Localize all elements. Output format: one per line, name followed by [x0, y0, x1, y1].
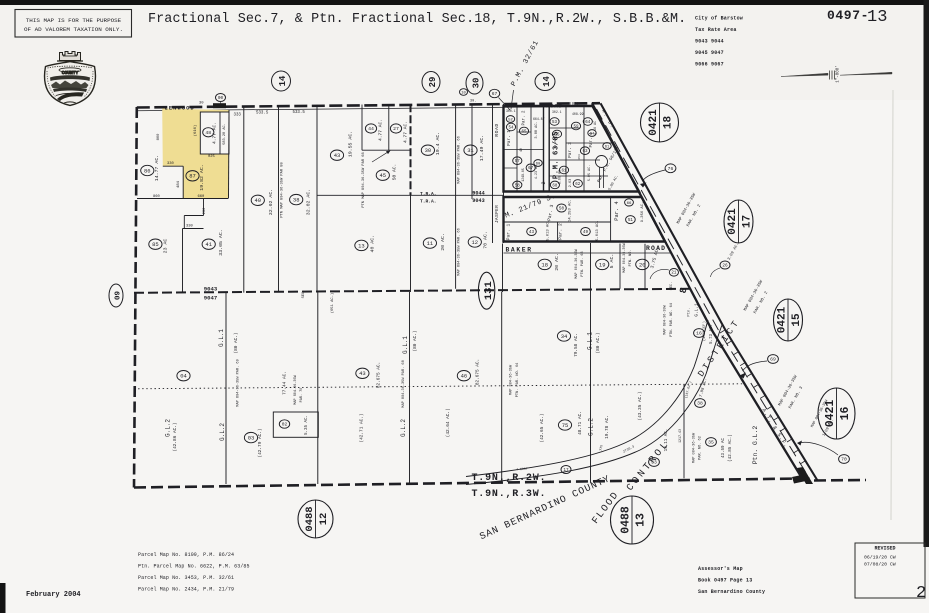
svg-text:32.02 AC.: 32.02 AC.: [268, 189, 274, 215]
svg-text:5.88 AC.: 5.88 AC.: [559, 168, 563, 184]
svg-text:PAR. 70: PAR. 70: [300, 388, 304, 403]
svg-text:33.05 AC.: 33.05 AC.: [218, 229, 224, 255]
svg-text:5.35 AC.: 5.35 AC.: [305, 415, 309, 435]
svg-text:MAP 804-36-35W PAR. 66: MAP 804-36-35W PAR. 66: [458, 228, 462, 275]
svg-text:59: 59: [573, 125, 579, 129]
svg-text:(1598.33'): (1598.33'): [702, 321, 706, 341]
svg-text:PTN MAP 804-36-35W PAR 68: PTN MAP 804-36-35W PAR 68: [362, 152, 366, 207]
svg-text:50: 50: [559, 206, 565, 211]
svg-text:Par. 1: Par. 1: [506, 223, 512, 240]
svg-text:20 AC.: 20 AC.: [440, 233, 446, 251]
svg-text:G.L.1: G.L.1: [587, 332, 594, 350]
svg-text:1249.65: 1249.65: [521, 168, 525, 181]
svg-text:12: 12: [318, 513, 330, 526]
svg-text:131: 131: [483, 281, 495, 300]
svg-text:5.05 AC.: 5.05 AC.: [588, 165, 592, 181]
svg-text:SEC.: SEC.: [302, 290, 306, 299]
svg-text:49: 49: [583, 230, 589, 235]
svg-text:Fractional Sec.7, & Ptn. Fract: Fractional Sec.7, & Ptn. Fractional Sec.…: [148, 12, 686, 27]
svg-text:70 AC.: 70 AC.: [483, 231, 489, 249]
svg-text:30: 30: [472, 78, 482, 89]
svg-text:64: 64: [585, 121, 591, 125]
svg-text:48.71 AC.: 48.71 AC.: [578, 411, 583, 435]
svg-text:PTN. NO.: PTN. NO.: [629, 250, 633, 267]
svg-text:35: 35: [708, 440, 714, 446]
svg-text:(42.85 AC.): (42.85 AC.): [728, 434, 733, 462]
svg-text:60: 60: [536, 162, 541, 166]
svg-text:19.4 AC.: 19.4 AC.: [435, 132, 441, 155]
svg-text:Par. 3: Par. 3: [568, 142, 573, 158]
svg-text:Par. 4: Par. 4: [614, 201, 620, 220]
svg-text:61: 61: [605, 145, 610, 149]
svg-text:(42.86 AC.): (42.86 AC.): [173, 423, 178, 452]
svg-text:51: 51: [628, 218, 634, 223]
svg-text:5 AC.: 5 AC.: [609, 254, 615, 269]
svg-text:800: 800: [157, 133, 161, 141]
svg-text:583.28 AC.: 583.28 AC.: [223, 123, 227, 145]
svg-text:38: 38: [293, 196, 300, 203]
svg-text:300.1: 300.1: [506, 109, 516, 113]
svg-text:MAP 004-36-35W: MAP 004-36-35W: [623, 242, 627, 272]
svg-text:PTN MAP 804-36-35W PAR 88: PTN MAP 804-36-35W PAR 88: [281, 162, 285, 217]
svg-text:660: 660: [198, 195, 206, 199]
svg-text:69: 69: [770, 357, 776, 363]
svg-text:17.49 AC.: 17.49 AC.: [479, 135, 485, 161]
svg-text:T.R.A.: T.R.A.: [420, 191, 437, 197]
svg-text:06/19/20 CW: 06/19/20 CW: [864, 555, 896, 561]
svg-text:2: 2: [541, 181, 547, 184]
svg-text:65: 65: [521, 130, 527, 134]
svg-text:MAP 804-36-35W PAR. 69: MAP 804-36-35W PAR. 69: [237, 359, 241, 406]
svg-text:5.013 AC.: 5.013 AC.: [596, 220, 600, 241]
svg-text:11: 11: [427, 240, 434, 247]
svg-text:MAP 804-36-35W: MAP 804-36-35W: [510, 364, 514, 395]
svg-text:21: 21: [671, 272, 677, 276]
svg-text:(80 AC.): (80 AC.): [596, 332, 601, 353]
svg-text:Book 0497 Page 13: Book 0497 Page 13: [698, 578, 752, 584]
svg-text:9066 9067: 9066 9067: [695, 62, 724, 68]
svg-text:77.44 AC.: 77.44 AC.: [283, 371, 288, 395]
svg-text:29: 29: [428, 77, 438, 88]
svg-text:5.73 AC.: 5.73 AC.: [710, 324, 714, 344]
svg-text:4.23 AC: 4.23 AC: [535, 165, 539, 179]
svg-text:G.L.2: G.L.2: [219, 423, 226, 441]
svg-text:43: 43: [529, 230, 535, 235]
svg-text:50 AC.: 50 AC.: [392, 164, 398, 181]
svg-text:32.02 AC.: 32.02 AC.: [306, 189, 312, 215]
svg-text:025: 025: [208, 155, 216, 159]
svg-text:12: 12: [471, 239, 478, 246]
svg-text:G.L.2: G.L.2: [400, 419, 407, 437]
svg-text:82.675 AC.: 82.675 AC.: [377, 362, 382, 388]
svg-text:64: 64: [590, 132, 595, 136]
svg-text:BAKER: BAKER: [506, 247, 533, 254]
svg-text:86: 86: [144, 167, 151, 174]
svg-text:330: 330: [186, 225, 194, 229]
svg-text:(651 AC.): (651 AC.): [330, 293, 335, 314]
svg-text:20: 20: [639, 261, 646, 268]
svg-text:Tax Rate Area: Tax Rate Area: [695, 27, 737, 33]
svg-text:(42.64 AC.): (42.64 AC.): [446, 408, 451, 437]
svg-text:Par. 1: Par. 1: [507, 130, 512, 146]
svg-text:5.013 AC.: 5.013 AC.: [547, 220, 551, 241]
svg-text:34: 34: [561, 333, 568, 340]
svg-text:0488: 0488: [620, 506, 633, 534]
svg-text:Assessor's Map: Assessor's Map: [698, 566, 743, 572]
svg-text:Ptn.: Ptn.: [688, 307, 692, 317]
svg-text:4.77 AC.: 4.77 AC.: [211, 122, 217, 144]
svg-text:February 2004: February 2004: [26, 591, 81, 599]
svg-text:45: 45: [379, 172, 386, 179]
svg-text:T.9N.,R.2W.: T.9N.,R.2W.: [472, 473, 547, 484]
svg-text:G.L.1: G.L.1: [218, 329, 225, 347]
svg-text:58: 58: [515, 184, 521, 188]
svg-text:1217.43: 1217.43: [678, 429, 682, 443]
svg-text:0421: 0421: [727, 208, 739, 235]
svg-text:30.: 30.: [470, 100, 476, 104]
svg-text:2.63: 2.63: [569, 179, 573, 188]
svg-text:9047: 9047: [204, 295, 217, 302]
svg-text:533.5: 533.5: [293, 111, 306, 115]
svg-text:G.L.2: G.L.2: [164, 419, 171, 437]
svg-text:PTN. PAR. NO. 64: PTN. PAR. NO. 64: [670, 303, 674, 337]
svg-text:30: 30: [425, 147, 432, 154]
svg-text:76: 76: [668, 166, 674, 172]
svg-text:1"-800': 1"-800': [836, 65, 841, 83]
svg-text:(80 AC.): (80 AC.): [413, 330, 418, 351]
svg-text:PTN. PAR. NO. 64: PTN. PAR. NO. 64: [516, 363, 520, 398]
svg-text:(42.65 AC.): (42.65 AC.): [540, 414, 545, 443]
svg-text:Par. 2: Par. 2: [558, 223, 564, 240]
svg-text:4.77 AC.: 4.77 AC.: [403, 121, 409, 143]
svg-text:0497-: 0497-: [827, 8, 869, 23]
svg-text:27: 27: [393, 126, 399, 132]
svg-text:Parcel Map No. 2434, P.M. 21/7: Parcel Map No. 2434, P.M. 21/79: [138, 587, 234, 593]
svg-text:10: 10: [461, 91, 466, 95]
svg-text:15: 15: [791, 313, 803, 327]
svg-text:26: 26: [722, 263, 728, 268]
svg-text:Parcel Map No. 8109, P.M. 86/2: Parcel Map No. 8109, P.M. 86/24: [138, 552, 234, 558]
svg-text:533.5: 533.5: [256, 112, 269, 116]
svg-text:87: 87: [189, 173, 196, 180]
svg-text:MAP 804-36-35W PAR. 66: MAP 804-36-35W PAR. 66: [458, 136, 462, 183]
svg-text:18: 18: [541, 261, 548, 268]
svg-text:ROAD: ROAD: [546, 103, 563, 110]
svg-text:9044: 9044: [472, 191, 484, 197]
svg-text:3.88 AC.: 3.88 AC.: [535, 121, 539, 138]
svg-text:OF AD VALOREM TAXATION ONLY.: OF AD VALOREM TAXATION ONLY.: [24, 26, 123, 33]
svg-text:63: 63: [582, 150, 588, 154]
svg-text:31: 31: [467, 147, 474, 154]
svg-text:2: 2: [916, 584, 926, 603]
svg-text:14.77 AC.: 14.77 AC.: [154, 155, 160, 181]
svg-text:9043 9044: 9043 9044: [695, 39, 724, 45]
svg-text:0421: 0421: [648, 109, 660, 136]
svg-text:MAP 804-36-35W: MAP 804-36-35W: [664, 304, 668, 334]
svg-text:4.77 AC.: 4.77 AC.: [378, 119, 384, 141]
svg-text:Par. 2: Par. 2: [523, 110, 527, 126]
svg-text:23 AC: 23 AC: [163, 239, 169, 254]
svg-text:85: 85: [152, 241, 159, 248]
svg-text:0421: 0421: [824, 400, 837, 428]
svg-text:G.L.1: G.L.1: [402, 336, 409, 354]
svg-text:43: 43: [334, 152, 341, 159]
svg-text:(42.79 AC.): (42.79 AC.): [258, 429, 263, 458]
svg-text:LENWOOD: LENWOOD: [165, 106, 195, 112]
svg-text:333: 333: [234, 114, 242, 118]
svg-text:82.675 AC.: 82.675 AC.: [476, 359, 481, 385]
svg-text:408.99: 408.99: [572, 112, 584, 116]
svg-text:REVISED: REVISED: [874, 546, 895, 552]
svg-text:16: 16: [839, 407, 852, 421]
svg-text:20 AC.: 20 AC.: [554, 253, 560, 271]
svg-text:MAP 004-36-35W: MAP 004-36-35W: [693, 432, 697, 463]
svg-text:THIS MAP IS FOR THE PURPOSE: THIS MAP IS FOR THE PURPOSE: [26, 17, 122, 24]
svg-text:T.9N.,R.3W.: T.9N.,R.3W.: [472, 489, 547, 500]
svg-text:MAP 804-36-35W: MAP 804-36-35W: [294, 374, 298, 404]
svg-text:13: 13: [867, 8, 887, 27]
svg-text:G.L.2: G.L.2: [588, 418, 595, 436]
svg-text:(42.71 AC.): (42.71 AC.): [359, 414, 364, 443]
svg-text:9.356 AC.: 9.356 AC.: [641, 202, 645, 223]
svg-text:70: 70: [841, 457, 847, 463]
svg-text:(43.35 AC.): (43.35 AC.): [638, 392, 643, 421]
svg-text:302.1: 302.1: [552, 110, 562, 114]
svg-text:230: 230: [203, 207, 207, 215]
svg-text:04: 04: [180, 373, 187, 380]
svg-text:14: 14: [278, 75, 288, 86]
svg-text:46: 46: [461, 373, 468, 380]
svg-text:03: 03: [248, 434, 255, 441]
svg-text:G.L.1: G.L.1: [695, 303, 700, 317]
svg-text:PTN. PAR. 63: PTN. PAR. 63: [581, 251, 585, 276]
svg-text:57: 57: [515, 160, 521, 164]
svg-text:54: 54: [508, 126, 514, 130]
svg-text:79.58 AC.: 79.58 AC.: [574, 333, 579, 357]
svg-text:19.55 AC.: 19.55 AC.: [348, 131, 354, 157]
svg-text:14.253 AC.: 14.253 AC.: [569, 199, 573, 222]
svg-text:62: 62: [575, 183, 581, 187]
svg-text:48: 48: [205, 130, 211, 136]
svg-text:9043: 9043: [472, 198, 484, 204]
svg-text:PAR. NO. 62: PAR. NO. 62: [699, 436, 703, 460]
svg-text:SEC.: SEC.: [670, 282, 674, 291]
svg-text:JASPER: JASPER: [494, 205, 500, 223]
svg-text:67: 67: [528, 167, 534, 171]
svg-text:67: 67: [492, 91, 498, 97]
svg-text:17: 17: [563, 468, 569, 473]
svg-text:68: 68: [552, 184, 558, 188]
svg-text:(80 AC.): (80 AC.): [234, 332, 239, 353]
svg-text:San Bernardino County: San Bernardino County: [698, 589, 765, 595]
svg-text:MAP 004-36-35W: MAP 004-36-35W: [575, 248, 579, 278]
svg-text:0488: 0488: [304, 506, 316, 531]
svg-text:MAP 804-36-35W PAR. 68: MAP 804-36-35W PAR. 68: [402, 360, 406, 407]
svg-text:Parcel Map No. 3453, P.M. 32/6: Parcel Map No. 3453, P.M. 32/61: [138, 575, 234, 581]
svg-text:City of Barstow: City of Barstow: [695, 16, 743, 22]
svg-text:19.78 AC.: 19.78 AC.: [605, 415, 610, 439]
svg-text:09: 09: [115, 291, 123, 301]
svg-text:14: 14: [542, 76, 552, 87]
svg-text:0421: 0421: [777, 306, 789, 333]
svg-text:664.87: 664.87: [533, 117, 545, 121]
svg-text:9045 9047: 9045 9047: [695, 50, 724, 56]
svg-text:17: 17: [742, 215, 754, 228]
svg-text:330: 330: [167, 162, 175, 166]
svg-text:ROAD: ROAD: [494, 123, 500, 137]
svg-text:02: 02: [282, 422, 288, 428]
svg-text:40: 40: [254, 197, 261, 204]
svg-text:(82): (82): [570, 102, 579, 107]
svg-text:30: 30: [199, 102, 204, 106]
svg-text:13: 13: [358, 242, 365, 249]
svg-text:19.82 AC.: 19.82 AC.: [199, 164, 205, 190]
svg-text:13: 13: [635, 513, 648, 527]
svg-text:89.285: 89.285: [554, 137, 557, 148]
svg-text:41: 41: [205, 241, 212, 248]
svg-text:9043: 9043: [204, 286, 218, 293]
svg-text:COUNTY: COUNTY: [62, 70, 79, 76]
svg-text:43: 43: [359, 370, 366, 377]
svg-text:43.59 AC: 43.59 AC: [722, 437, 726, 458]
svg-text:07/08/20 CW: 07/08/20 CW: [864, 562, 896, 568]
svg-text:19: 19: [599, 261, 606, 268]
svg-text:38: 38: [697, 401, 703, 407]
svg-text:53: 53: [552, 121, 558, 125]
svg-text:454: 454: [578, 154, 581, 160]
svg-text:T.R.A.: T.R.A.: [420, 199, 437, 205]
svg-text:00: 00: [218, 96, 224, 101]
svg-text:Ptn. G.L.2: Ptn. G.L.2: [752, 426, 759, 465]
svg-text:40 AC.: 40 AC.: [370, 235, 376, 253]
svg-text:40: 40: [519, 148, 523, 152]
svg-text:18: 18: [663, 116, 675, 130]
svg-text:75: 75: [562, 422, 569, 429]
svg-text:44: 44: [368, 126, 374, 132]
svg-text:52: 52: [508, 118, 513, 122]
svg-text:860: 860: [153, 195, 161, 199]
svg-text:Ptn. Parcel Map No. 6622, P.M.: Ptn. Parcel Map No. 6622, P.M. 63/85: [138, 564, 250, 570]
svg-text:484: 484: [177, 180, 181, 188]
svg-text:66: 66: [627, 202, 632, 206]
svg-text:(616): (616): [193, 125, 198, 137]
